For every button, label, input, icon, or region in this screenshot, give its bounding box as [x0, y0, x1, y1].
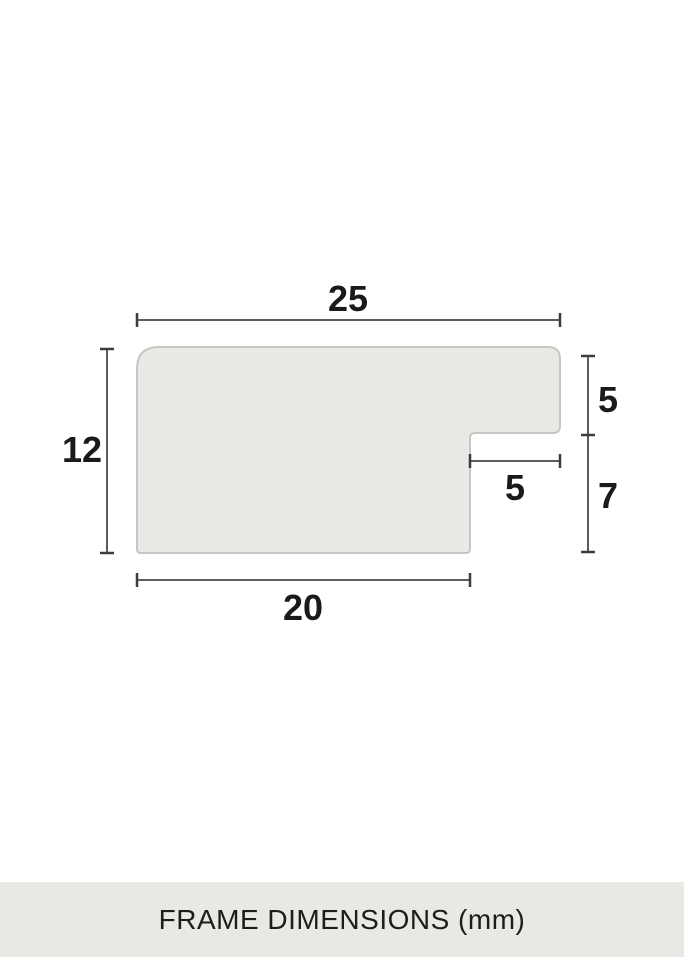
dimension-value: 25 [328, 278, 368, 319]
frame-profile-shape [137, 347, 560, 553]
footer-bar: FRAME DIMENSIONS (mm) [0, 882, 684, 957]
footer-caption: FRAME DIMENSIONS (mm) [159, 904, 526, 936]
dimension-value: 12 [62, 429, 102, 470]
dimension-bottom-width: 20 [137, 573, 470, 628]
dimension-value: 7 [598, 475, 618, 516]
frame-dimensions-page: 25 12 5 7 5 20 [0, 0, 684, 957]
dimension-top-width: 25 [137, 278, 560, 327]
dimension-value: 5 [598, 379, 618, 420]
frame-cross-section-diagram: 25 12 5 7 5 20 [0, 0, 684, 882]
dimension-value: 20 [283, 587, 323, 628]
dimension-right-heights: 5 7 [581, 356, 618, 552]
dimension-notch-width: 5 [470, 454, 560, 508]
dimension-value: 5 [505, 467, 525, 508]
dimension-left-height: 12 [62, 349, 114, 553]
